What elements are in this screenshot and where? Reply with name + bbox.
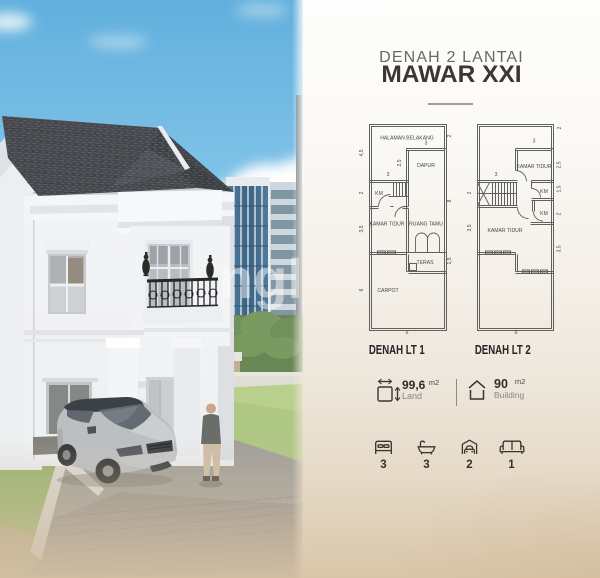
svg-text:8: 8 — [447, 199, 453, 202]
svg-text:2: 2 — [557, 126, 563, 129]
svg-text:3: 3 — [425, 141, 428, 147]
svg-text:3: 3 — [387, 172, 390, 178]
svg-text:6: 6 — [359, 288, 365, 291]
svg-text:3,5: 3,5 — [359, 225, 365, 232]
svg-text:KAMAR TIDUR: KAMAR TIDUR — [517, 164, 552, 170]
svg-text:3,5: 3,5 — [467, 224, 473, 231]
svg-text:2: 2 — [557, 212, 563, 215]
svg-text:KM: KM — [540, 211, 548, 217]
svg-text:RUANG TAMU: RUANG TAMU — [409, 222, 443, 228]
svg-text:2: 2 — [447, 134, 453, 137]
svg-text:3: 3 — [533, 139, 536, 145]
svg-text:1,5: 1,5 — [557, 185, 563, 192]
svg-text:TERAS: TERAS — [417, 260, 435, 266]
svg-text:DAPUR: DAPUR — [417, 163, 435, 169]
svg-text:CARPOT: CARPOT — [377, 288, 398, 294]
svg-text:3,5: 3,5 — [557, 245, 563, 252]
svg-text:KAMAR TIDUR: KAMAR TIDUR — [370, 222, 405, 228]
svg-text:KAMAR TIDUR: KAMAR TIDUR — [488, 228, 523, 234]
svg-text:2,5: 2,5 — [397, 159, 403, 166]
svg-text:4,5: 4,5 — [359, 149, 365, 156]
svg-text:2: 2 — [359, 191, 365, 194]
svg-text:KM: KM — [375, 191, 383, 197]
svg-text:1,5: 1,5 — [447, 257, 453, 264]
svg-text:3: 3 — [495, 172, 498, 178]
svg-text:2: 2 — [467, 191, 473, 194]
svg-text:6: 6 — [406, 330, 409, 336]
svg-text:KM: KM — [540, 189, 548, 195]
svg-text:6: 6 — [515, 330, 518, 336]
svg-text:2,5: 2,5 — [557, 161, 563, 168]
